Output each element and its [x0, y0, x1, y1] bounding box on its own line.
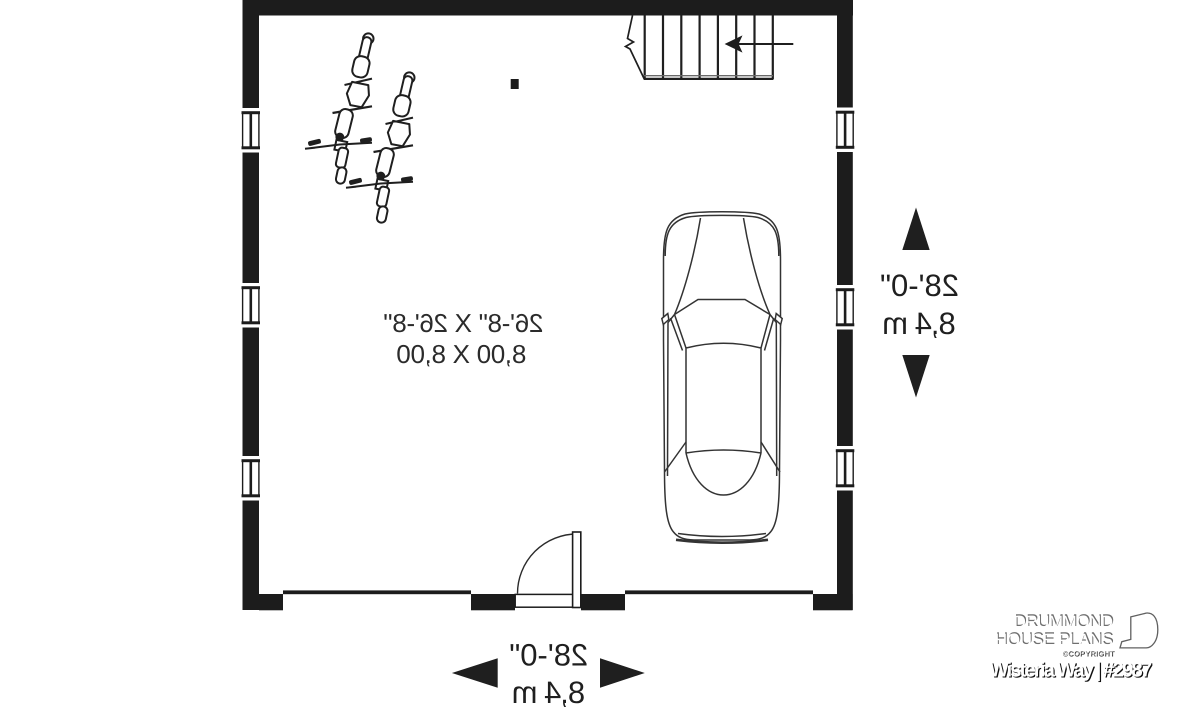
svg-text:©COPYRIGHT: ©COPYRIGHT: [1062, 649, 1114, 658]
svg-text:Wisteria Way | #2987: Wisteria Way | #2987: [989, 658, 1151, 681]
svg-text:28'-0": 28'-0": [509, 637, 588, 672]
svg-text:26'-8" X 26'-8": 26'-8" X 26'-8": [384, 308, 544, 338]
svg-text:8,00 X 8,00: 8,00 X 8,00: [397, 339, 527, 369]
svg-text:28'-0": 28'-0": [880, 268, 959, 303]
svg-text:HOUSE PLANS: HOUSE PLANS: [995, 631, 1113, 650]
svg-text:8,4 m: 8,4 m: [513, 675, 586, 710]
svg-text:8,4 m: 8,4 m: [883, 306, 956, 341]
